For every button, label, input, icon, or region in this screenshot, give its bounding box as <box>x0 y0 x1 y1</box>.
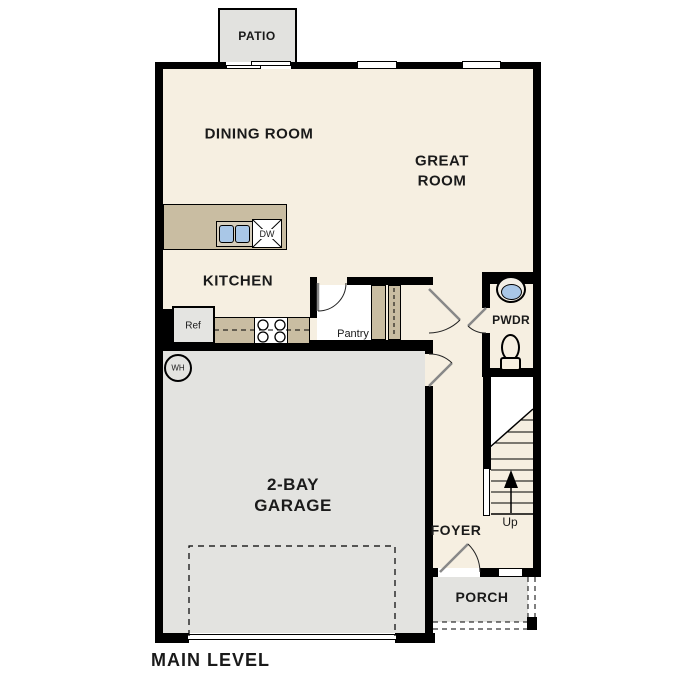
kitchen-label: KITCHEN <box>203 273 273 290</box>
stairs-up-label: Up <box>502 515 517 529</box>
window-dining <box>357 61 397 69</box>
great-room-label-line2: ROOM <box>418 173 467 190</box>
powder-sink-bowl <box>501 284 522 300</box>
pantry-label: Pantry <box>337 328 369 340</box>
window-great-room <box>462 61 501 69</box>
great-room-label-line1: GREAT <box>415 153 469 170</box>
coat-closet <box>388 285 401 340</box>
toilet-tank <box>500 357 521 371</box>
sink-basin-right <box>235 225 250 243</box>
refrigerator-label: Ref <box>185 321 201 332</box>
foyer-label: FOYER <box>431 522 482 538</box>
wall-foyer-bottom-c <box>523 568 541 577</box>
wall-foyer-bottom-a <box>425 568 438 577</box>
pantry-wall-strip <box>371 285 386 340</box>
dining-room-label: DINING ROOM <box>205 126 314 143</box>
patio-label: PATIO <box>238 29 275 43</box>
powder-room-label: PWDR <box>492 313 530 327</box>
wall-kitchen-stub <box>310 277 317 318</box>
wall-bottom-right <box>395 633 435 643</box>
wall-bottom-left <box>155 633 189 643</box>
patio-slider-panel-right <box>251 61 291 66</box>
garage-label-line2: GARAGE <box>254 496 332 516</box>
sink-basin-left <box>219 225 234 243</box>
wall-garage-right-upper <box>425 340 433 354</box>
stove <box>254 317 288 344</box>
page-title: MAIN LEVEL <box>151 650 270 671</box>
wall-garage-right-lower <box>425 386 433 643</box>
wall-left <box>155 62 163 643</box>
floor-plan: PATIO DINING ROOM GREAT ROOM KITCHEN PWD… <box>0 0 687 687</box>
garage-door-threshold <box>187 634 397 640</box>
wall-right <box>533 62 541 577</box>
garage-label-line1: 2-BAY <box>267 475 319 495</box>
porch-label: PORCH <box>455 589 508 605</box>
wall-pantry-top <box>347 277 433 285</box>
stair-handrail <box>483 468 490 516</box>
water-heater-label: WH <box>171 364 184 373</box>
window-entry-sidelite <box>498 568 523 577</box>
dishwasher-label: DW <box>259 229 276 239</box>
wall-foyer-bottom-b <box>480 568 498 577</box>
wall-powder-left-upper <box>482 272 490 308</box>
porch-post <box>527 617 537 630</box>
wall-stairs-left <box>483 377 491 470</box>
